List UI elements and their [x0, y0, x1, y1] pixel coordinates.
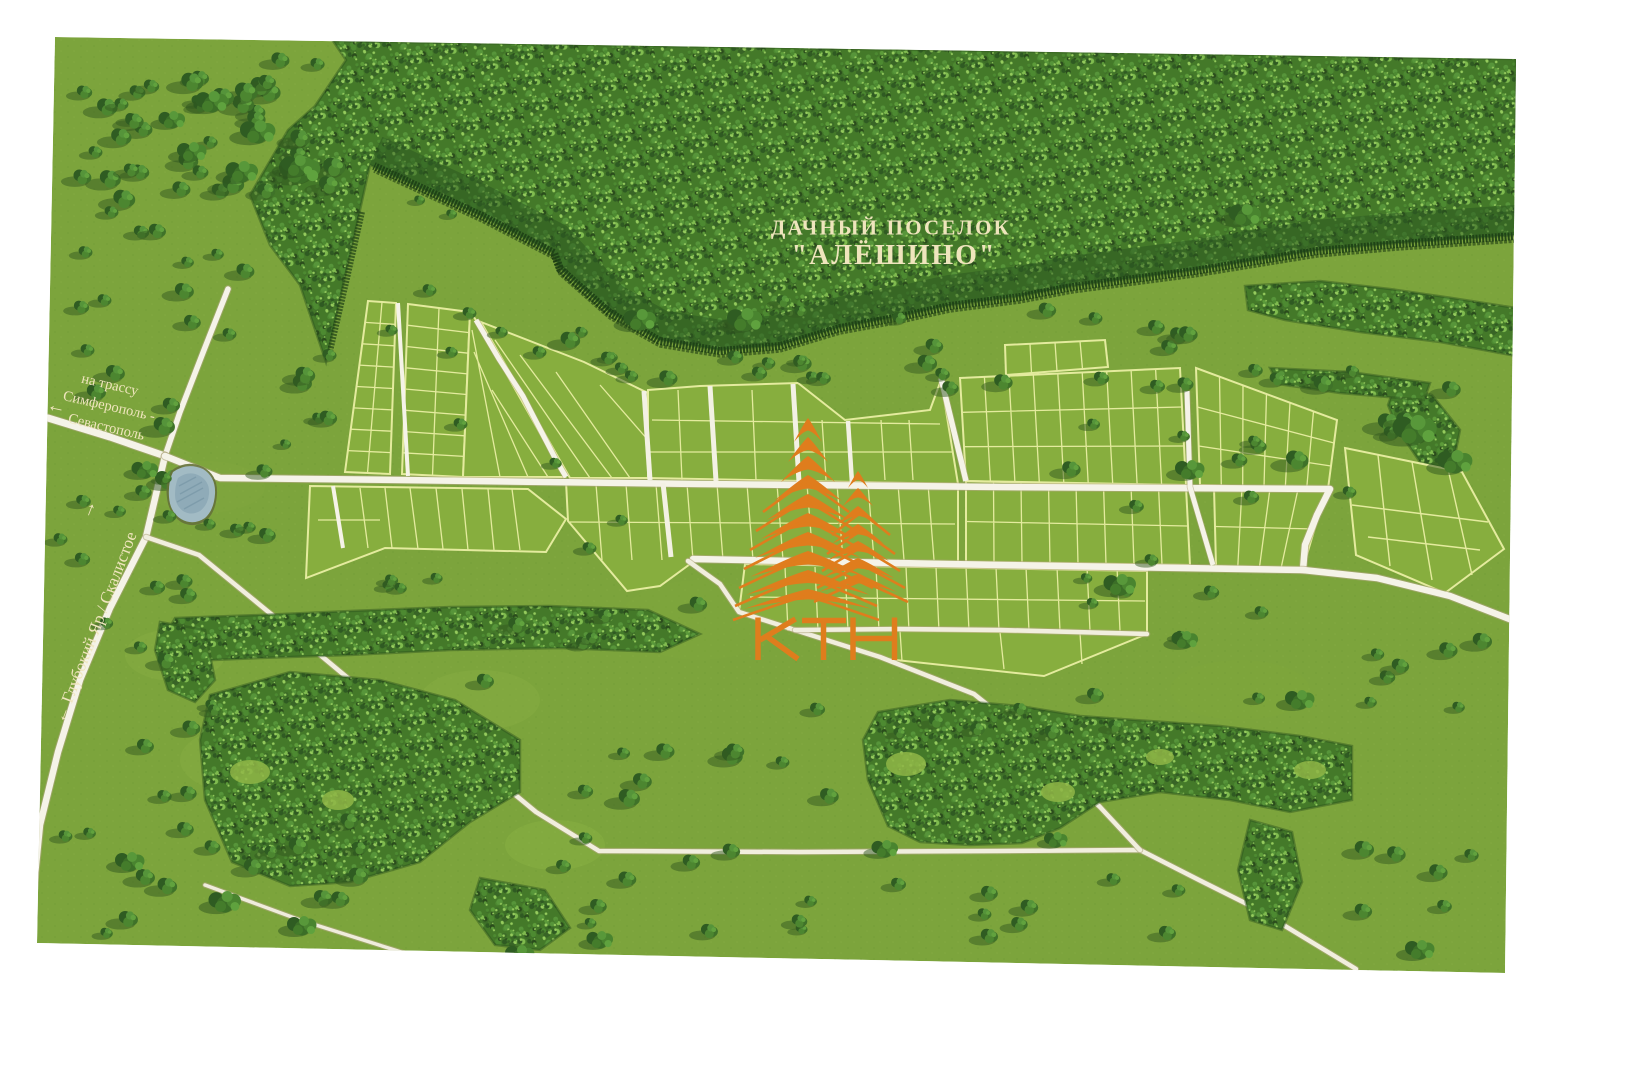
- svg-text:"АЛЁШИНО": "АЛЁШИНО": [792, 240, 997, 271]
- svg-text:ДАЧНЫЙ ПОСЕЛОК: ДАЧНЫЙ ПОСЕЛОК: [771, 216, 1011, 240]
